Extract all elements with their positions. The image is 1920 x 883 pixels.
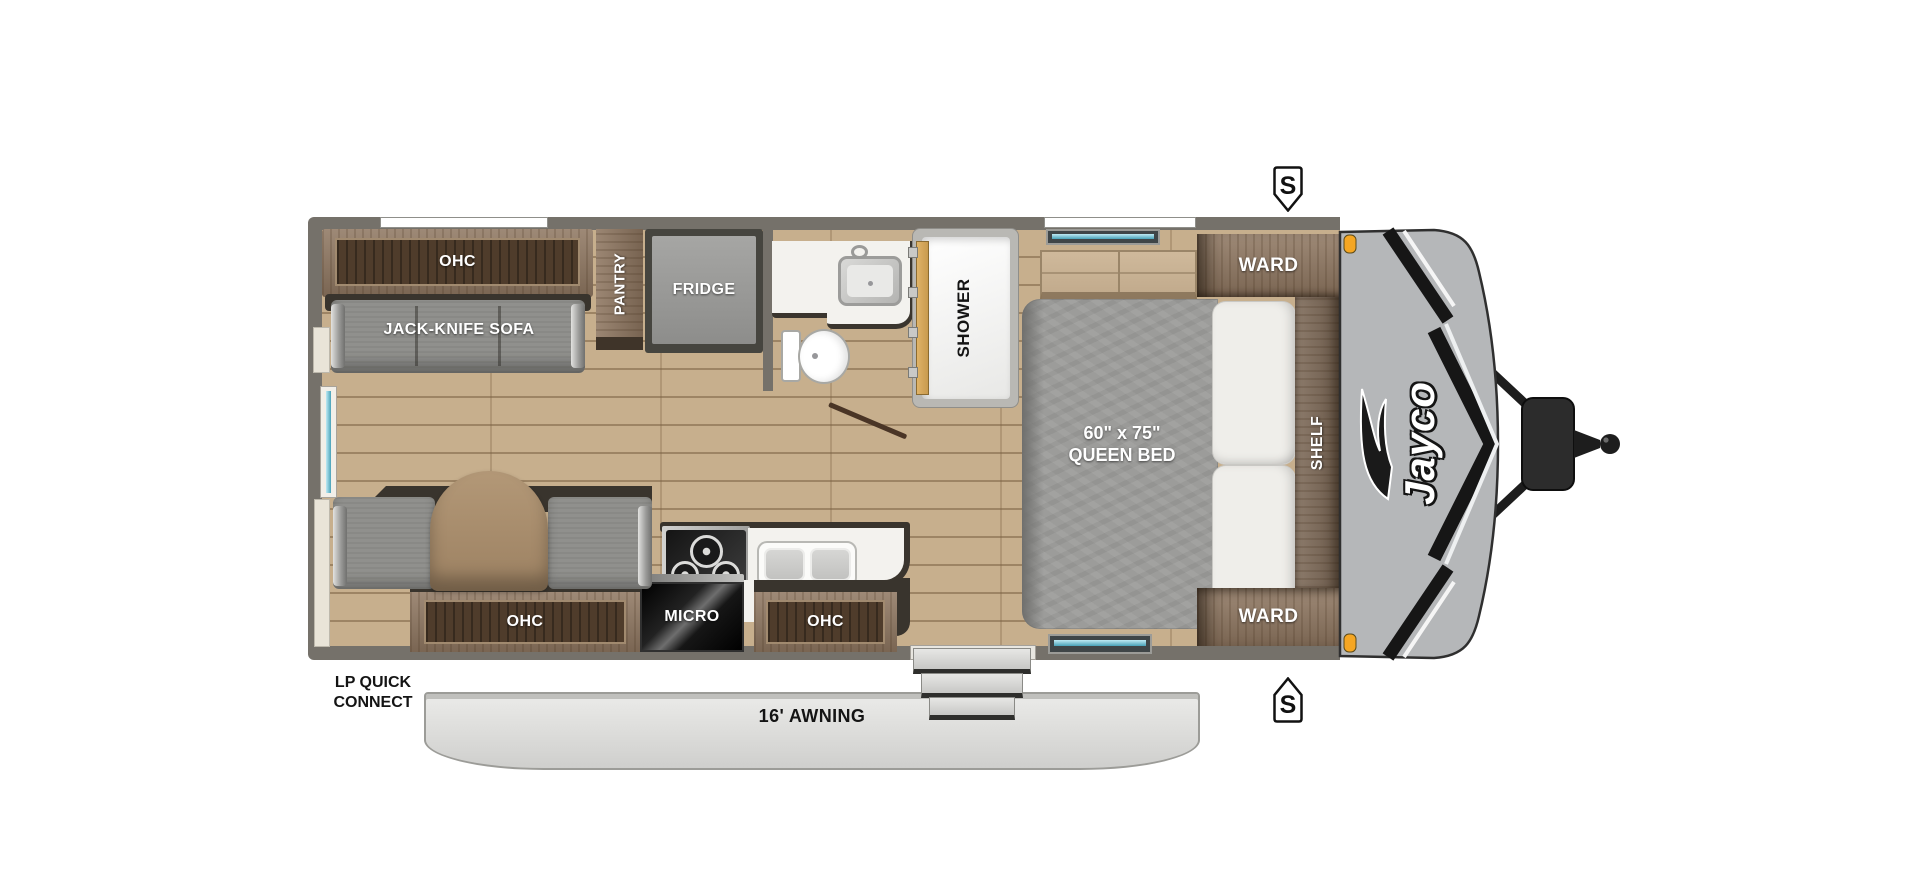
pantry-shadow	[596, 337, 643, 350]
bedroom-dresser	[1040, 250, 1197, 299]
lp-line2: CONNECT	[298, 693, 448, 713]
bed-size-label: 60" x 75"	[1032, 422, 1212, 444]
shower-hinge-2	[908, 287, 918, 298]
jayco-brand-text: Jayco	[1396, 381, 1444, 505]
lp-line1: LP QUICK	[298, 673, 448, 693]
kitchen-sink-bowl-right	[810, 548, 851, 581]
lp-quick-connect-label: LP QUICK CONNECT	[298, 673, 448, 713]
bathroom-faucet	[851, 245, 868, 259]
marker-light-top	[1344, 235, 1356, 253]
toilet-flush	[812, 353, 818, 359]
jayco-eagle-icon	[1356, 383, 1396, 503]
ohc-entry-label: OHC	[807, 613, 844, 631]
window-top-front	[1044, 217, 1196, 228]
speaker-top-letter: S	[1280, 172, 1297, 200]
ward-top-label: WARD	[1239, 255, 1299, 277]
shower-hinge-3	[908, 327, 918, 338]
toilet-bowl	[798, 329, 850, 384]
wardrobe-top: WARD	[1197, 234, 1340, 297]
micro-label: MICRO	[664, 608, 719, 626]
dinette-post-left	[333, 506, 347, 586]
awning-label: 16' AWNING	[424, 704, 1200, 728]
bed-name-label: QUEEN BED	[1032, 444, 1212, 466]
kitchen-sink-bowl-left	[764, 548, 805, 581]
window-top-rear	[380, 217, 548, 228]
rear-trim-dinette	[314, 499, 330, 647]
counter-gap-fill	[744, 580, 754, 622]
pantry-label: PANTRY	[610, 237, 630, 332]
ohc-rear-label: OHC	[507, 613, 544, 631]
entry-step-2	[921, 673, 1023, 698]
speaker-badge-bottom: S	[1273, 677, 1303, 723]
speaker-bottom-letter: S	[1280, 691, 1297, 719]
bathroom-sink	[838, 256, 902, 306]
shelf-label: SHELF	[1308, 383, 1328, 503]
fridge: FRIDGE	[645, 229, 763, 353]
fridge-label: FRIDGE	[673, 281, 736, 299]
bed-pillow-top	[1212, 301, 1296, 465]
hitch-coupler	[1574, 430, 1600, 458]
microwave: MICRO	[640, 582, 744, 652]
marker-light-bottom	[1344, 634, 1356, 652]
dinette-post-right	[638, 506, 652, 586]
dinette-seat-left	[333, 497, 435, 589]
bedroom-window-bottom	[1048, 634, 1152, 654]
speaker-badge-top: S	[1273, 166, 1303, 212]
dinette-table	[430, 471, 548, 591]
shower-hinge-1	[908, 247, 918, 258]
wardrobe-bottom: WARD	[1197, 588, 1340, 646]
dinette-seat-right	[548, 497, 652, 589]
ward-bottom-label: WARD	[1239, 606, 1299, 628]
entry-step-1	[913, 648, 1031, 674]
bed-label: 60" x 75" QUEEN BED	[1032, 422, 1212, 466]
rear-window	[320, 386, 337, 498]
overhead-cabinet-entry: OHC	[754, 580, 897, 652]
propane-tongue-box	[1522, 398, 1574, 490]
floorplan-canvas: OHC JACK-KNIFE SOFA PANTRY FRIDGE	[0, 0, 1920, 883]
entry-step-3	[929, 697, 1015, 720]
hitch-ball	[1600, 434, 1620, 454]
shower-label: SHOWER	[954, 243, 974, 393]
shower-hinge-4	[908, 367, 918, 378]
bedroom-window-top	[1046, 229, 1160, 245]
sink-drain	[868, 281, 873, 286]
rear-trim-sofa	[313, 327, 330, 373]
sofa-label: JACK-KNIFE SOFA	[333, 320, 585, 340]
ohc-top-label: OHC	[439, 253, 476, 271]
overhead-cabinet-top: OHC	[322, 229, 593, 297]
jayco-logo: Jayco	[1354, 328, 1446, 558]
